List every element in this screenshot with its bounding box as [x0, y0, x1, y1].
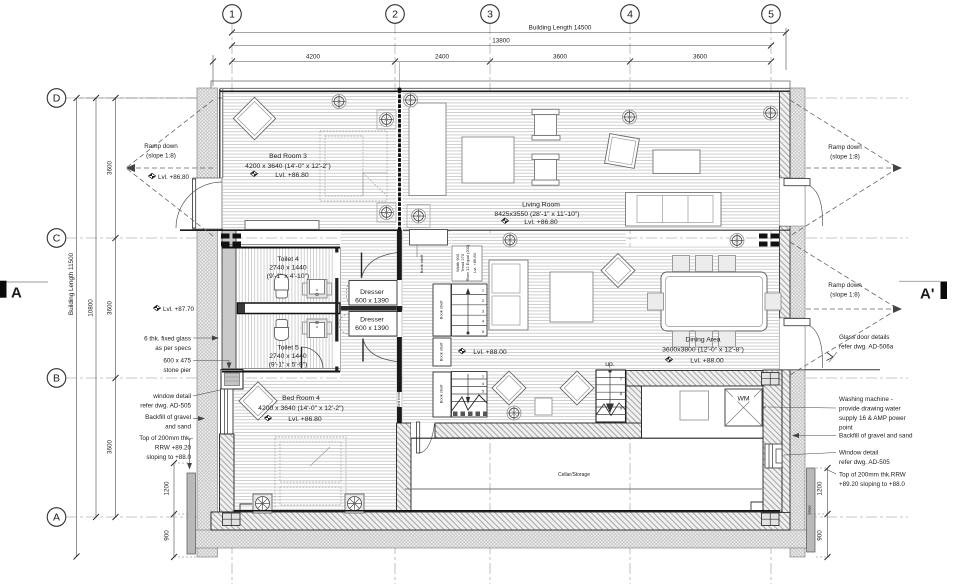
svg-text:Washing machine -: Washing machine - [839, 396, 893, 403]
svg-text:(9'-1" x 4'-10"): (9'-1" x 4'-10") [267, 273, 310, 280]
svg-text:3600: 3600 [107, 161, 114, 176]
svg-text:window detail: window detail [152, 393, 191, 400]
svg-text:Dresser: Dresser [360, 289, 385, 296]
svg-text:Lvl. +86.80: Lvl. +86.80 [472, 252, 477, 272]
svg-text:D: D [53, 93, 61, 105]
svg-text:2400: 2400 [435, 54, 450, 61]
svg-text:6 thk. fixed glass: 6 thk. fixed glass [144, 336, 191, 343]
svg-text:(slope 1:8): (slope 1:8) [146, 153, 176, 160]
svg-text:600 x 475: 600 x 475 [163, 358, 191, 365]
svg-text:Glass door details: Glass door details [839, 334, 889, 341]
svg-text:Toilet 4: Toilet 4 [277, 256, 299, 263]
svg-text:stone pier: stone pier [163, 367, 191, 374]
svg-text:2: 2 [392, 9, 398, 21]
svg-text:3600: 3600 [553, 54, 568, 61]
svg-text:A: A [53, 512, 60, 524]
svg-text:2740 x 1440: 2740 x 1440 [269, 265, 307, 272]
svg-text:Toilet 5: Toilet 5 [277, 345, 299, 352]
svg-text:refer dwg. AD-505: refer dwg. AD-505 [140, 403, 191, 410]
svg-text:Window detail: Window detail [839, 450, 878, 457]
svg-text:Lvl. +88.00: Lvl. +88.00 [690, 358, 724, 365]
svg-text:WM: WM [737, 396, 749, 403]
svg-text:Bed Room 3: Bed Room 3 [269, 153, 307, 160]
svg-text:C: C [53, 233, 61, 245]
svg-text:as per specs: as per specs [155, 345, 191, 352]
svg-text:refer dwg. AD-505: refer dwg. AD-505 [839, 459, 890, 466]
svg-text:Ramp down: Ramp down [144, 143, 178, 150]
svg-text:Lvl. +86.80: Lvl. +86.80 [158, 174, 189, 181]
svg-text:Backfill of gravel and sand: Backfill of gravel and sand [839, 433, 913, 440]
svg-text:3600: 3600 [107, 440, 114, 455]
svg-text:Backfill of gravel: Backfill of gravel [145, 414, 191, 421]
svg-text:Dining Area: Dining Area [685, 337, 720, 344]
svg-text:Living Room: Living Room [522, 202, 560, 209]
svg-text:3600: 3600 [107, 301, 114, 316]
svg-text:Top of 200mm thk.RRW: Top of 200mm thk.RRW [839, 472, 906, 479]
svg-text:Bed room: Bed room [396, 390, 401, 408]
svg-text:Lvl. +86.80: Lvl. +86.80 [275, 172, 309, 179]
svg-text:2740 x 1440: 2740 x 1440 [269, 353, 307, 360]
svg-text:Lvl. +88.00: Lvl. +88.00 [473, 349, 507, 356]
svg-text:+89.20 sloping to +88.0: +89.20 sloping to +88.0 [839, 481, 905, 488]
svg-text:13800: 13800 [492, 38, 510, 45]
svg-text:Slope: Slope [808, 505, 812, 514]
svg-text:900: 900 [817, 530, 824, 541]
svg-text:600 x 1390: 600 x 1390 [355, 298, 389, 305]
svg-text:point: point [839, 425, 853, 432]
svg-text:Book shelf: Book shelf [439, 342, 444, 362]
svg-text:3600: 3600 [693, 54, 708, 61]
svg-text:Top of 200mm thk.: Top of 200mm thk. [139, 435, 191, 442]
svg-text:Book shelf: Book shelf [419, 254, 424, 274]
svg-text:up.: up. [605, 361, 615, 368]
svg-text:Lvl. +86.80: Lvl. +86.80 [524, 219, 558, 226]
svg-text:10800: 10800 [88, 299, 95, 317]
svg-text:Dresser: Dresser [360, 317, 385, 324]
svg-text:4200 x 3640 (14'-0" x 12'-2"): 4200 x 3640 (14'-0" x 12'-2") [245, 163, 331, 170]
svg-text:B: B [53, 373, 60, 385]
svg-text:and sand: and sand [165, 424, 191, 431]
svg-text:Building Length 14500: Building Length 14500 [529, 25, 592, 32]
svg-text:(9'-1" x 5'-9"): (9'-1" x 5'-9") [269, 362, 308, 369]
svg-text:supply 16 & AMP power: supply 16 & AMP power [839, 415, 906, 422]
svg-text:Lvl. +86.80: Lvl. +86.80 [288, 416, 322, 423]
svg-text:Book shelf: Book shelf [439, 300, 444, 320]
svg-text:(slope 1:8): (slope 1:8) [830, 292, 860, 299]
svg-text:1: 1 [229, 9, 235, 21]
svg-text:sloping to +88.0: sloping to +88.0 [146, 454, 191, 461]
svg-text:Building Length 11500: Building Length 11500 [68, 252, 75, 315]
svg-text:Book shelf: Book shelf [439, 384, 444, 404]
svg-text:refer dwg. AD-506a: refer dwg. AD-506a [839, 344, 894, 351]
svg-text:Ramp down: Ramp down [828, 282, 862, 289]
svg-text:600 x 1390: 600 x 1390 [355, 325, 389, 332]
svg-text:1200: 1200 [817, 481, 824, 496]
svg-text:4: 4 [627, 9, 633, 21]
svg-text:3: 3 [487, 9, 493, 21]
svg-text:Ramp down: Ramp down [828, 144, 862, 151]
svg-text:Riser 12 Equal (200): Riser 12 Equal (200) [465, 244, 470, 281]
svg-text:Bed Room 4: Bed Room 4 [282, 395, 320, 402]
svg-text:Cellar/Storage: Cellar/Storage [558, 472, 590, 478]
svg-text:900: 900 [164, 530, 171, 541]
svg-text:4200: 4200 [306, 54, 321, 61]
svg-text:4200 x 3640 (14'-0" x 12'-2"): 4200 x 3640 (14'-0" x 12'-2") [258, 405, 344, 412]
svg-text:A': A' [920, 286, 934, 303]
svg-text:1200: 1200 [164, 481, 171, 496]
svg-text:provide drawing water: provide drawing water [839, 406, 901, 413]
svg-text:3600x3800 (12'-0" x 12'-8"): 3600x3800 (12'-0" x 12'-8") [662, 347, 744, 354]
svg-text:8425x3550 (28'-1" x 11'-10"): 8425x3550 (28'-1" x 11'-10") [494, 211, 579, 218]
svg-text:A: A [11, 285, 22, 302]
svg-text:(slope 1:8): (slope 1:8) [830, 154, 860, 161]
svg-text:5: 5 [768, 9, 774, 21]
svg-text:Lvl. +87.70: Lvl. +87.70 [163, 306, 194, 313]
svg-text:RRW +89.20: RRW +89.20 [155, 445, 192, 452]
